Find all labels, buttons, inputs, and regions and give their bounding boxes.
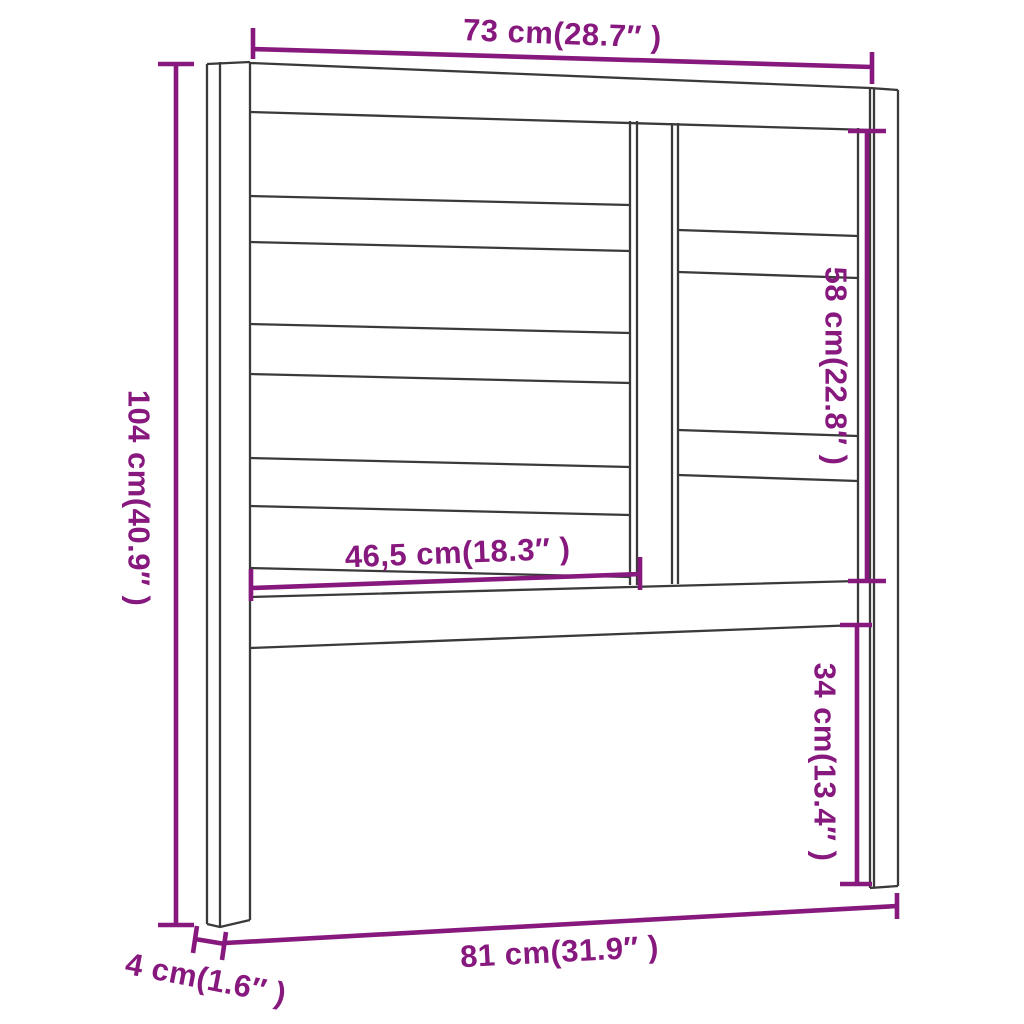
dim-bottom-width-label: 81 cm(31.9″ ) bbox=[459, 929, 659, 974]
dim-inner-width-label: 46,5 cm(18.3″ ) bbox=[344, 531, 571, 575]
dim-right-lower-height-line bbox=[840, 625, 872, 884]
top-rail bbox=[250, 63, 870, 130]
dim-post-depth-line bbox=[193, 926, 226, 960]
right-post bbox=[870, 88, 898, 888]
dimension-right-lower-height: 34 cm(13.4″ ) bbox=[808, 625, 873, 884]
middle-divider bbox=[630, 121, 678, 585]
headboard-outline bbox=[207, 62, 898, 927]
dim-right-lower-height-label: 34 cm(13.4″ ) bbox=[808, 663, 843, 862]
dim-left-height-label: 104 cm(40.9″ ) bbox=[122, 390, 157, 607]
dim-left-height-line bbox=[158, 64, 194, 925]
dimension-bottom-width: 81 cm(31.9″ ) bbox=[225, 893, 897, 974]
dimension-top-width: 73 cm(28.7″ ) bbox=[253, 12, 872, 84]
dimension-inner-width: 46,5 cm(18.3″ ) bbox=[251, 531, 640, 601]
left-post bbox=[207, 62, 250, 927]
dim-top-width-label: 73 cm(28.7″ ) bbox=[462, 12, 662, 55]
dim-right-upper-height-label: 58 cm(22.8″ ) bbox=[819, 267, 854, 466]
dim-post-depth-label: 4 cm(1.6″ ) bbox=[122, 946, 289, 1012]
diagram-canvas: 73 cm(28.7″ ) 104 cm(40.9″ ) 58 cm(22.8″… bbox=[0, 0, 1024, 1024]
dimension-left-height: 104 cm(40.9″ ) bbox=[122, 64, 195, 925]
dimension-right-upper-height: 58 cm(22.8″ ) bbox=[819, 131, 887, 581]
bottom-rail bbox=[250, 581, 858, 648]
headboard-dimension-diagram: 73 cm(28.7″ ) 104 cm(40.9″ ) 58 cm(22.8″… bbox=[0, 0, 1024, 1024]
left-column-slats bbox=[250, 196, 630, 577]
